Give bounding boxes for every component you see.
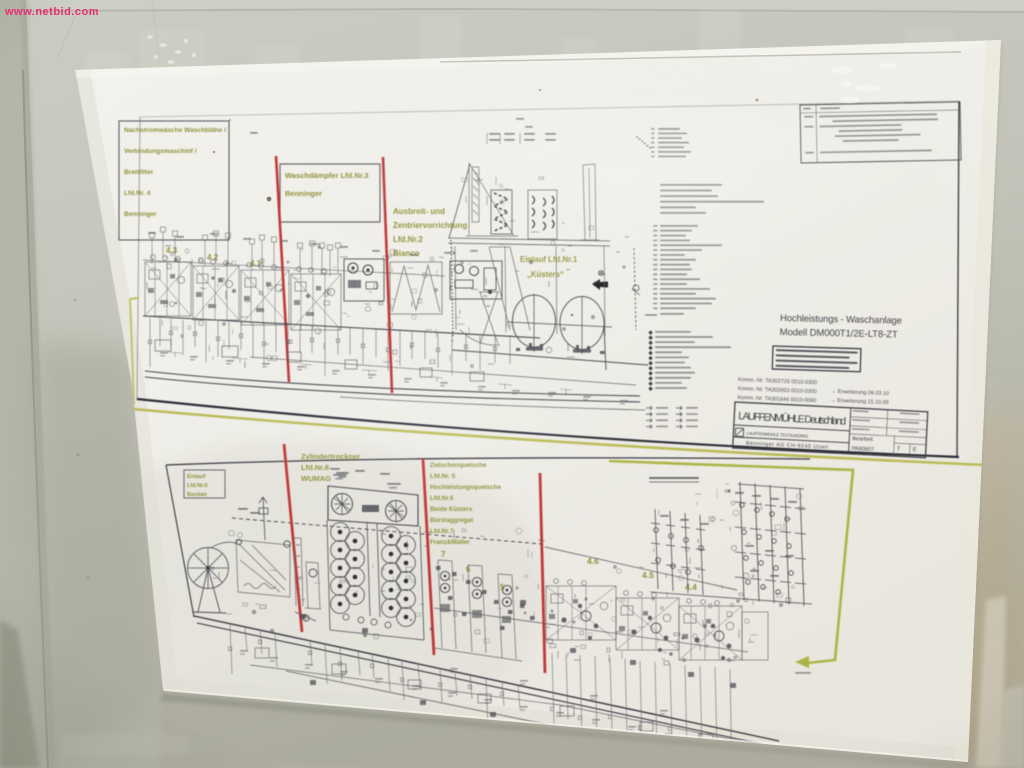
svg-text:www.netbid.com: www.netbid.com xyxy=(4,6,99,18)
